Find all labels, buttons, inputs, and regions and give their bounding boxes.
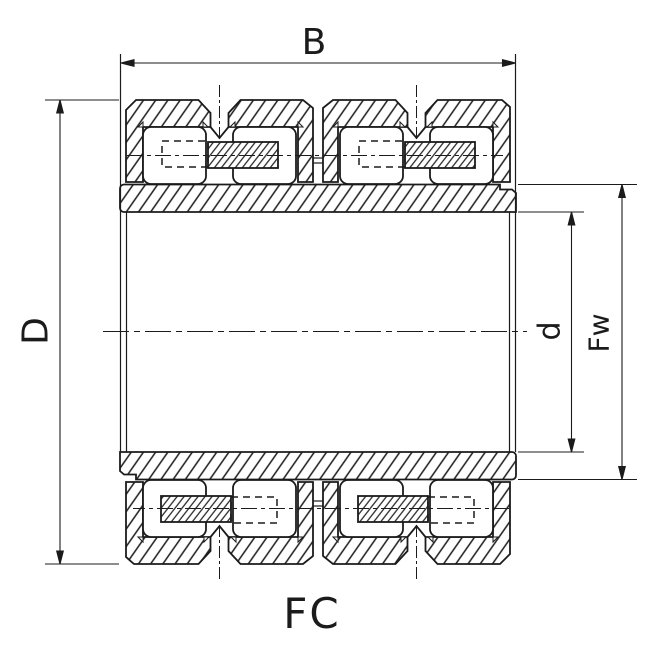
inner-ring xyxy=(120,185,516,213)
label-bearing-series-FC: FC xyxy=(283,589,340,638)
label-width-B: B xyxy=(302,22,327,63)
arrowhead-down xyxy=(57,551,64,564)
technical-drawing-bearing-cross-section: B D d Fw FC xyxy=(0,0,668,652)
arrowhead-right xyxy=(503,60,516,67)
arrowhead-down xyxy=(619,467,626,480)
arrowhead-up xyxy=(57,100,64,113)
arrowhead-up xyxy=(619,185,626,198)
label-raceway-diameter-Fw: Fw xyxy=(583,313,616,352)
bearing-upper-half xyxy=(120,85,516,212)
arrowhead-down xyxy=(568,439,575,452)
drawing-canvas: B D d Fw FC xyxy=(0,0,668,652)
label-outer-diameter-D: D xyxy=(16,317,57,345)
bearing-lower-half xyxy=(120,452,516,579)
arrowhead-left xyxy=(121,60,134,67)
label-bore-diameter-d: d xyxy=(533,321,568,340)
arrowhead-up xyxy=(568,212,575,225)
